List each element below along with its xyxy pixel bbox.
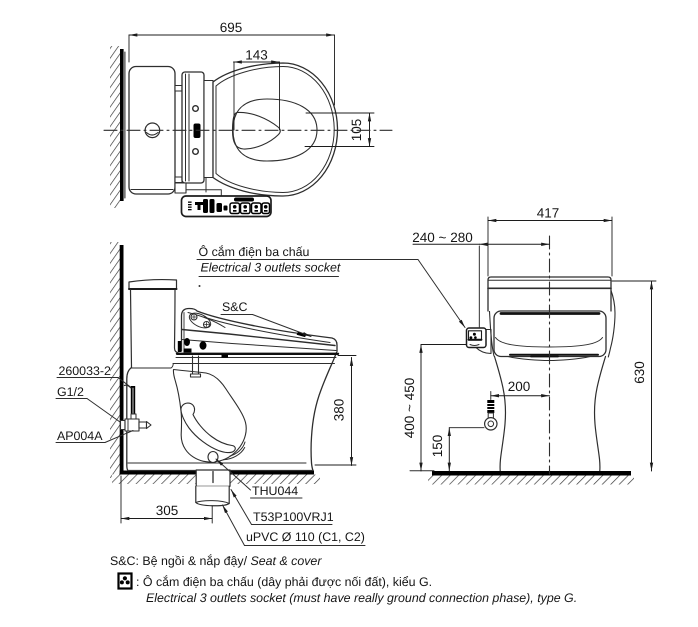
svg-text:G1/2: G1/2	[57, 385, 84, 399]
svg-text:417: 417	[537, 206, 560, 221]
svg-text:400 ~ 450: 400 ~ 450	[402, 378, 417, 438]
svg-text:Ô cắm điện ba chấu: Ô cắm điện ba chấu	[199, 245, 310, 259]
svg-text:240 ~ 280: 240 ~ 280	[412, 230, 472, 245]
svg-text:Electrical 3 outlets socket (m: Electrical 3 outlets socket (must have r…	[146, 591, 577, 605]
svg-text:S&C: S&C	[222, 300, 248, 314]
svg-text:695: 695	[220, 20, 243, 35]
svg-text:: Ô cắm điện ba chấu (dây phải: : Ô cắm điện ba chấu (dây phải được nối …	[136, 575, 432, 589]
svg-text:T53P100VRJ1: T53P100VRJ1	[253, 510, 334, 524]
svg-text:260033-2: 260033-2	[59, 364, 111, 378]
svg-text:380: 380	[332, 399, 347, 422]
svg-text:630: 630	[632, 361, 647, 384]
svg-text:THU044: THU044	[252, 484, 298, 498]
svg-text:305: 305	[156, 503, 179, 518]
svg-text:AP004A: AP004A	[57, 429, 103, 443]
svg-text:S&C: Bệ ngồi & nắp đậy/ Seat &: S&C: Bệ ngồi & nắp đậy/ Seat & cover	[110, 554, 322, 568]
svg-text:Electrical 3 outlets socket: Electrical 3 outlets socket	[201, 261, 341, 275]
svg-text:uPVC Ø 110 (C1, C2): uPVC Ø 110 (C1, C2)	[246, 530, 365, 544]
svg-text:143: 143	[245, 48, 268, 63]
svg-text:150: 150	[430, 435, 445, 458]
svg-text:200: 200	[508, 379, 531, 394]
